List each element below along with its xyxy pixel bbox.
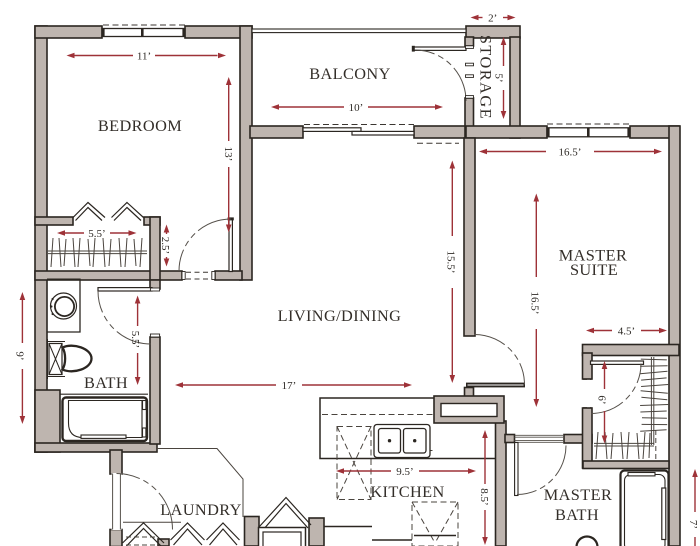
svg-text:6’: 6’ (596, 395, 608, 404)
svg-text:13’: 13’ (222, 147, 234, 162)
svg-text:9.5’: 9.5’ (396, 466, 413, 478)
svg-text:7’: 7’ (687, 520, 699, 529)
svg-text:10’: 10’ (349, 102, 364, 114)
svg-text:11’: 11’ (137, 50, 151, 62)
svg-text:8.5’: 8.5’ (478, 488, 490, 505)
svg-text:LAUNDRY: LAUNDRY (160, 500, 242, 519)
svg-text:KITCHEN: KITCHEN (370, 482, 444, 501)
svg-text:SUITE: SUITE (570, 260, 618, 279)
svg-text:5.5’: 5.5’ (88, 228, 105, 240)
svg-text:5.5’: 5.5’ (129, 331, 141, 348)
svg-text:BATH: BATH (84, 373, 128, 392)
svg-text:15.5’: 15.5’ (445, 251, 457, 274)
svg-text:16.5’: 16.5’ (559, 146, 582, 158)
svg-text:MASTER: MASTER (544, 485, 612, 504)
svg-text:BALCONY: BALCONY (309, 64, 391, 83)
svg-text:BEDROOM: BEDROOM (98, 116, 182, 135)
svg-text:16.5’: 16.5’ (529, 292, 541, 315)
svg-text:17’: 17’ (282, 380, 297, 392)
svg-text:4.5’: 4.5’ (618, 325, 635, 337)
svg-text:BATH: BATH (555, 505, 599, 524)
svg-text:2.5’: 2.5’ (159, 237, 171, 254)
svg-text:9’: 9’ (14, 351, 26, 360)
svg-text:2’: 2’ (488, 12, 497, 24)
svg-text:LIVING/DINING: LIVING/DINING (278, 306, 402, 325)
svg-text:STORAGE: STORAGE (477, 35, 496, 120)
